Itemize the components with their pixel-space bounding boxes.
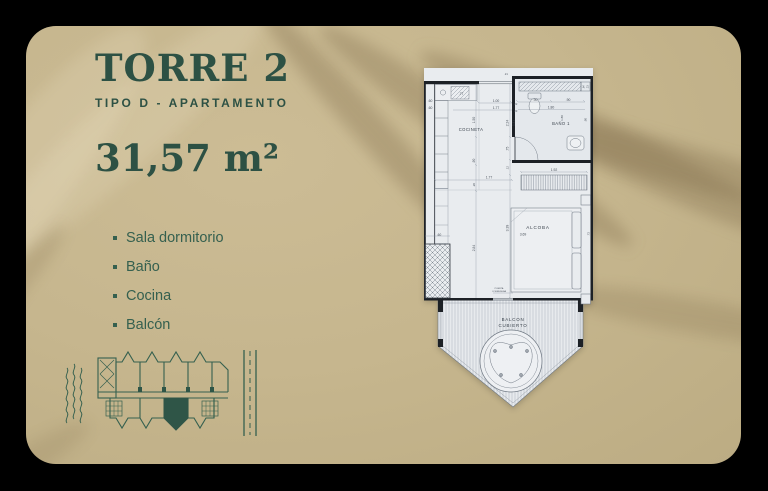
plan-column-hatched	[425, 244, 450, 298]
feature-label: Balcón	[126, 317, 170, 333]
dim-label: .60	[437, 233, 442, 237]
dim-label: .75	[506, 147, 510, 152]
dim-label: 3.39	[506, 225, 510, 232]
dim-label: .72	[587, 232, 591, 237]
door-marks	[138, 387, 214, 392]
info-block: TORRE 2 TIPO D - APARTAMENTO 31,57 m²	[95, 50, 290, 180]
dim-label: .90	[533, 98, 538, 102]
dim-label: .21	[504, 72, 508, 76]
dim-label: 2.24	[506, 120, 510, 127]
dim-label: .20	[472, 183, 476, 188]
dim-label: 1.80	[548, 106, 555, 110]
feature-label: Baño	[126, 259, 160, 275]
room-label-balcon-2: CUBIERTO	[499, 323, 528, 328]
vegetation-pattern	[66, 364, 82, 423]
bullet-square-icon	[113, 236, 117, 240]
dim-label: 1.51	[512, 120, 516, 126]
dim-label: .60	[428, 99, 433, 103]
feature-label: Sala dormitorio	[126, 230, 224, 246]
bullet-square-icon	[113, 265, 117, 269]
dim-label: .22	[514, 102, 518, 106]
feature-label: Cocina	[126, 288, 171, 304]
dim-label: 1.00	[493, 99, 500, 103]
floorplan-drawing: COCINETA BAÑO 1 ALCOBA BALCON CUBIERTO .…	[415, 60, 615, 430]
bullet-square-icon	[113, 294, 117, 298]
feature-item: Sala dormitorio	[126, 230, 224, 246]
dim-label: .12	[506, 166, 510, 170]
dim-label: 1.80	[560, 115, 564, 121]
bullet-square-icon	[113, 323, 117, 327]
dim-label: .90	[472, 159, 476, 164]
building-locator-plan	[62, 346, 270, 442]
dim-label: .90	[566, 98, 571, 102]
feature-item: Cocina	[126, 288, 224, 304]
dim-label: 1.92	[551, 168, 558, 172]
jacuzzi	[480, 330, 542, 392]
dim-label: 2.84	[472, 245, 476, 252]
dim-label: .90	[584, 118, 588, 123]
dim-label: 3.69	[520, 233, 527, 237]
unit-type-subtitle: TIPO D - APARTAMENTO	[95, 96, 290, 110]
page-title: TORRE 2	[95, 50, 290, 87]
palm-shadow-6	[26, 218, 74, 365]
page: TORRE 2 TIPO D - APARTAMENTO 31,57 m² Sa…	[0, 0, 768, 491]
area-value: 31,57 m²	[95, 136, 290, 180]
room-label-alcoba: ALCOBA	[526, 225, 550, 230]
dim-label: .77	[459, 92, 464, 96]
door-note-label: CORREDERA	[492, 290, 507, 293]
room-label-cocineta: COCINETA	[459, 127, 484, 132]
road-symbol	[244, 350, 256, 436]
dim-label: 1.77	[486, 176, 493, 180]
flyer-card: TORRE 2 TIPO D - APARTAMENTO 31,57 m² Sa…	[26, 26, 741, 464]
dim-label: 1.77	[493, 106, 500, 110]
room-label-balcon-1: BALCON	[502, 317, 525, 322]
highlighted-unit	[164, 398, 188, 430]
door-note-label: PUERTA	[495, 287, 504, 290]
feature-item: Baño	[126, 259, 224, 275]
dim-label: .23	[514, 109, 518, 113]
dim-label: .60	[428, 106, 433, 110]
feature-list: Sala dormitorio Baño Cocina Balcón	[126, 230, 224, 346]
dim-label: 1.50	[472, 117, 476, 124]
feature-item: Balcón	[126, 317, 224, 333]
locator-building	[66, 352, 228, 428]
